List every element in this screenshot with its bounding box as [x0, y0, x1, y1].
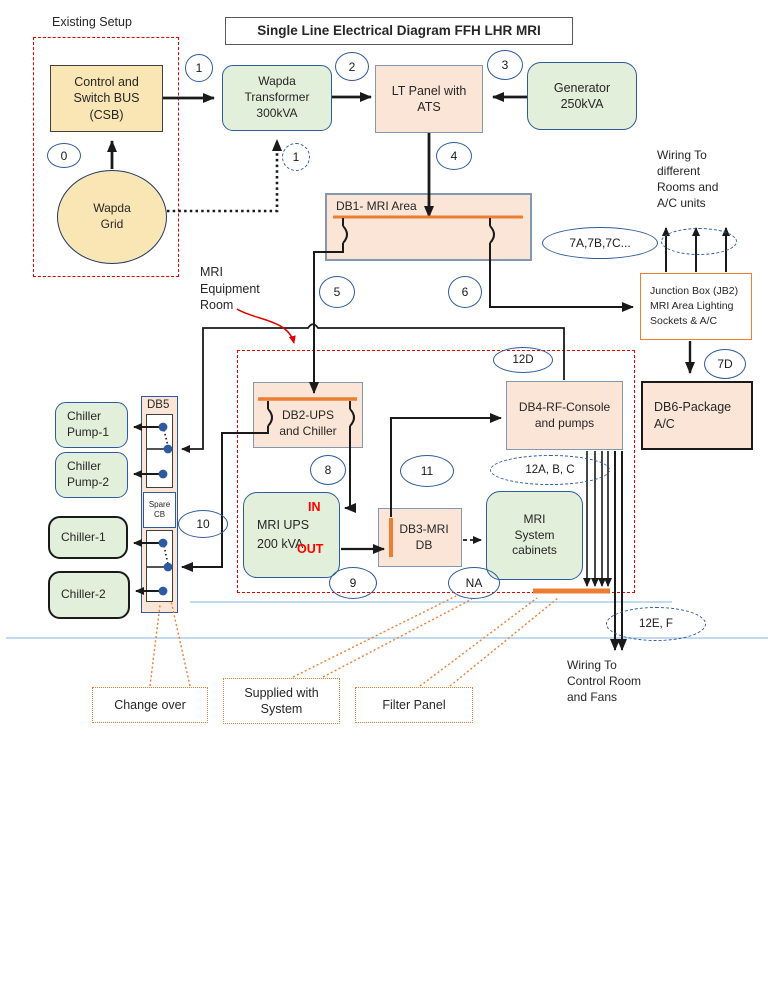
filter-panel-label: Filter Panel: [382, 697, 445, 713]
db4-rf-console-box: DB4-RF-Console and pumps: [506, 381, 623, 450]
grid-line1: Wapda: [93, 201, 131, 217]
badge-na: NA: [448, 567, 500, 599]
wapda-transformer-box: Wapda Transformer 300kVA: [222, 65, 332, 131]
db4-line2: and pumps: [535, 416, 594, 432]
wiring-rooms-line2: different: [657, 164, 718, 180]
chiller-pump1-line2: Pump-1: [67, 425, 109, 441]
badge-7abc: 7A,7B,7C...: [542, 227, 658, 259]
generator-line1: Generator: [554, 80, 610, 97]
cabinets-line1: MRI: [524, 512, 546, 528]
grid-line2: Grid: [101, 217, 124, 233]
wiring-control-line3: and Fans: [567, 690, 641, 706]
jb2-line2: MRI Area Lighting: [650, 299, 733, 314]
db5-label: DB5: [147, 398, 169, 413]
db6-line2: A/C: [654, 416, 675, 433]
mri-room-pointer-arrow: [237, 309, 294, 343]
db2-line2: and Chiller: [279, 424, 336, 440]
db2-line1: DB2-UPS: [282, 408, 334, 424]
chiller-pump2-box: Chiller Pump-2: [55, 452, 128, 498]
badge-12d: 12D: [493, 347, 553, 373]
junction-box-jb2: Junction Box (JB2) MRI Area Lighting Soc…: [640, 273, 752, 340]
db3-mri-db-box: DB3-MRI DB: [378, 508, 462, 567]
badge-9: 9: [329, 567, 377, 599]
wapda-grid-ellipse: Wapda Grid: [57, 170, 167, 264]
badge-1-dashed: 1: [282, 143, 310, 171]
badge-10: 10: [178, 510, 228, 538]
generator-box: Generator 250kVA: [527, 62, 637, 130]
cabinets-line3: cabinets: [512, 543, 557, 559]
wiring-rooms-line1: Wiring To: [657, 148, 718, 164]
lt-line2: ATS: [417, 99, 440, 116]
badge-1: 1: [185, 54, 213, 82]
spare-cb-line1: Spare: [149, 500, 170, 510]
electrical-diagram-page: Single Line Electrical Diagram FFH LHR M…: [0, 0, 768, 994]
jb2-line1: Junction Box (JB2): [650, 284, 738, 299]
filter-panel-callout: Filter Panel: [355, 687, 473, 723]
badge-12ef: 12E, F: [606, 607, 706, 641]
chiller-pump1-line1: Chiller: [67, 409, 101, 425]
diagram-title: Single Line Electrical Diagram FFH LHR M…: [257, 22, 541, 40]
badge-7d: 7D: [704, 349, 746, 379]
csb-line2: Switch BUS: [74, 90, 140, 107]
jb2-line3: Sockets & A/C: [650, 314, 717, 329]
lt-line1: LT Panel with: [392, 83, 467, 100]
change-over-callout: Change over: [92, 687, 208, 723]
wiring-control-line1: Wiring To: [567, 658, 641, 674]
db5-lower-breaker-section: [146, 530, 173, 602]
mri-room-line3: Room: [200, 297, 260, 314]
db4-line1: DB4-RF-Console: [519, 400, 610, 416]
chiller-pump2-line2: Pump-2: [67, 475, 109, 491]
transformer-line2: Transformer: [245, 90, 310, 106]
badge-4: 4: [436, 142, 472, 170]
db6-package-ac-box: DB6-Package A/C: [641, 381, 753, 450]
spare-cb-line2: CB: [154, 510, 165, 520]
badge-3: 3: [487, 50, 523, 80]
csb-line3: (CSB): [89, 107, 123, 124]
callout-pointer-lines: [150, 596, 558, 686]
badge-6: 6: [448, 276, 482, 308]
chiller-pump2-line1: Chiller: [67, 459, 101, 475]
diagram-title-box: Single Line Electrical Diagram FFH LHR M…: [225, 17, 573, 45]
change-over-label: Change over: [114, 697, 186, 713]
db3-line1: DB3-MRI: [399, 522, 448, 538]
badge-5: 5: [319, 276, 355, 308]
ups-in-label: IN: [308, 499, 321, 516]
chiller1-label: Chiller-1: [61, 530, 106, 546]
wiring-control-line2: Control Room: [567, 674, 641, 690]
chiller2-label: Chiller-2: [61, 587, 106, 603]
generator-line2: 250kVA: [561, 96, 604, 113]
mri-system-cabinets-box: MRI System cabinets: [486, 491, 583, 580]
db6-line1: DB6-Package: [654, 399, 731, 416]
ups-out-label: OUT: [297, 541, 323, 558]
wiring-rooms-line4: A/C units: [657, 196, 718, 212]
chiller2-box: Chiller-2: [48, 571, 130, 619]
mri-ups-box: MRI UPS 200 kVA: [243, 492, 340, 578]
supplied-line1: Supplied with: [244, 685, 318, 701]
db3-line2: DB: [416, 538, 433, 554]
chiller1-box: Chiller-1: [48, 516, 128, 559]
existing-setup-label: Existing Setup: [52, 14, 132, 31]
wiring-control-label: Wiring To Control Room and Fans: [567, 658, 641, 706]
wiring-rooms-line3: Rooms and: [657, 180, 718, 196]
mri-room-line1: MRI: [200, 264, 260, 281]
db5-upper-breaker-section: [146, 414, 173, 488]
badge-8: 8: [310, 455, 346, 485]
spare-cb-box: Spare CB: [143, 492, 176, 528]
transformer-line3: 300kVA: [256, 106, 297, 122]
ups-line1: MRI UPS: [257, 516, 309, 535]
badge-jb2-wire-group: [661, 228, 737, 255]
badge-12abc: 12A, B, C: [490, 455, 610, 485]
mri-room-label: MRI Equipment Room: [200, 264, 260, 314]
badge-0: 0: [47, 143, 81, 168]
chiller-pump1-box: Chiller Pump-1: [55, 402, 128, 448]
badge-11: 11: [400, 455, 454, 487]
csb-line1: Control and: [74, 74, 139, 91]
supplied-with-system-callout: Supplied with System: [223, 678, 340, 724]
cabinets-line2: System: [514, 528, 554, 544]
lt-panel-box: LT Panel with ATS: [375, 65, 483, 133]
wiring-rooms-label: Wiring To different Rooms and A/C units: [657, 148, 718, 212]
db1-label: DB1- MRI Area: [336, 199, 417, 215]
mri-room-line2: Equipment: [200, 281, 260, 298]
badge-2: 2: [335, 52, 369, 81]
supplied-line2: System: [261, 701, 303, 717]
db2-ups-chiller-box: DB2-UPS and Chiller: [253, 382, 363, 448]
control-switch-bus-box: Control and Switch BUS (CSB): [50, 65, 163, 132]
transformer-line1: Wapda: [258, 74, 296, 90]
